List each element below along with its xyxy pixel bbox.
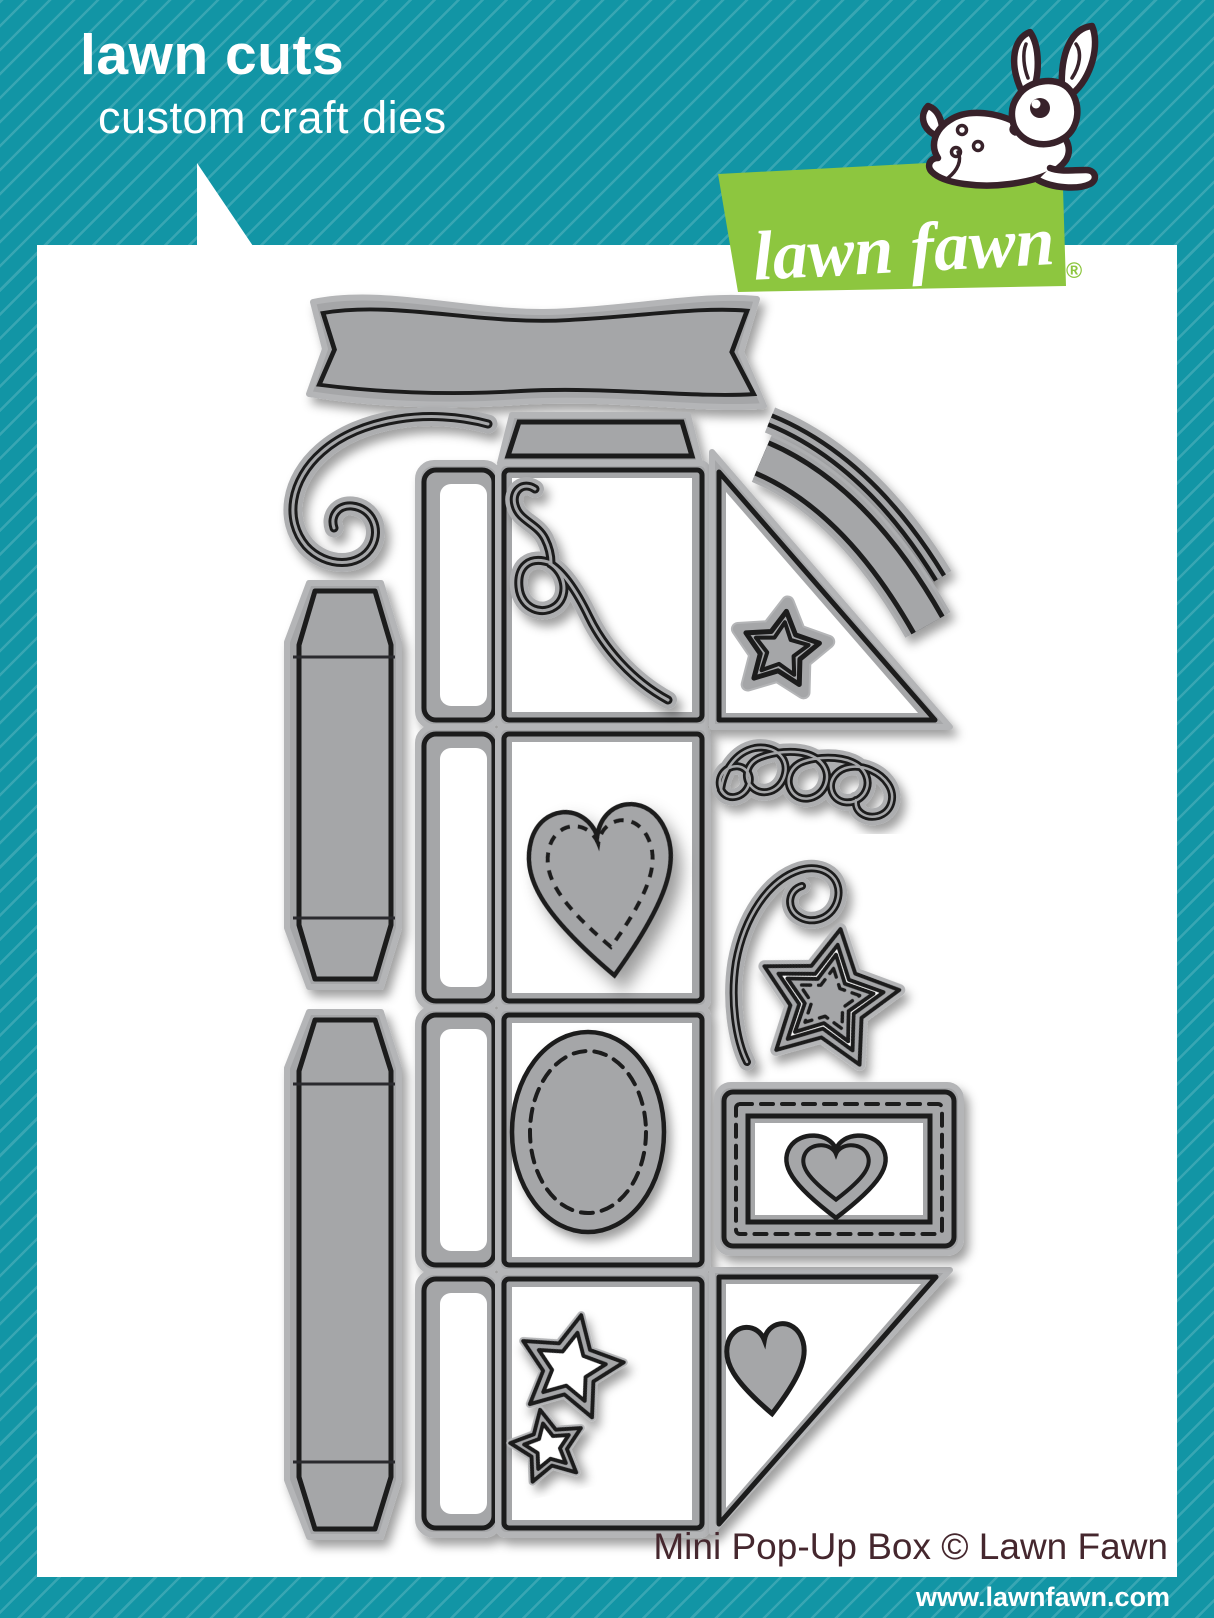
swallowtail-banner-die (309, 297, 764, 407)
website-url: www.lawnfawn.com (916, 1582, 1170, 1613)
side-strip-die-2 (287, 1012, 399, 1537)
loop-doodle-die (720, 748, 892, 817)
product-title: Mini Pop-Up Box © Lawn Fawn (653, 1526, 1168, 1568)
logo-brand-text: lawn fawn (751, 203, 1056, 296)
stitched-rectangle-frame-die (717, 1085, 961, 1253)
side-strip-die-1 (287, 583, 399, 987)
die-artwork: lawn fawn ® (0, 0, 1214, 1618)
stitched-oval-die (512, 1032, 664, 1232)
logo-registered-mark: ® (1066, 258, 1082, 283)
stitched-star-in-frame-die (750, 917, 908, 1069)
brand-logo: lawn fawn ® (718, 26, 1095, 296)
fawn-logo-icon (923, 26, 1095, 187)
popup-triangle-bottom-die (712, 1270, 950, 1532)
product-card: lawn cuts custom craft dies (0, 0, 1214, 1618)
box-side-flap-column (418, 463, 500, 1535)
